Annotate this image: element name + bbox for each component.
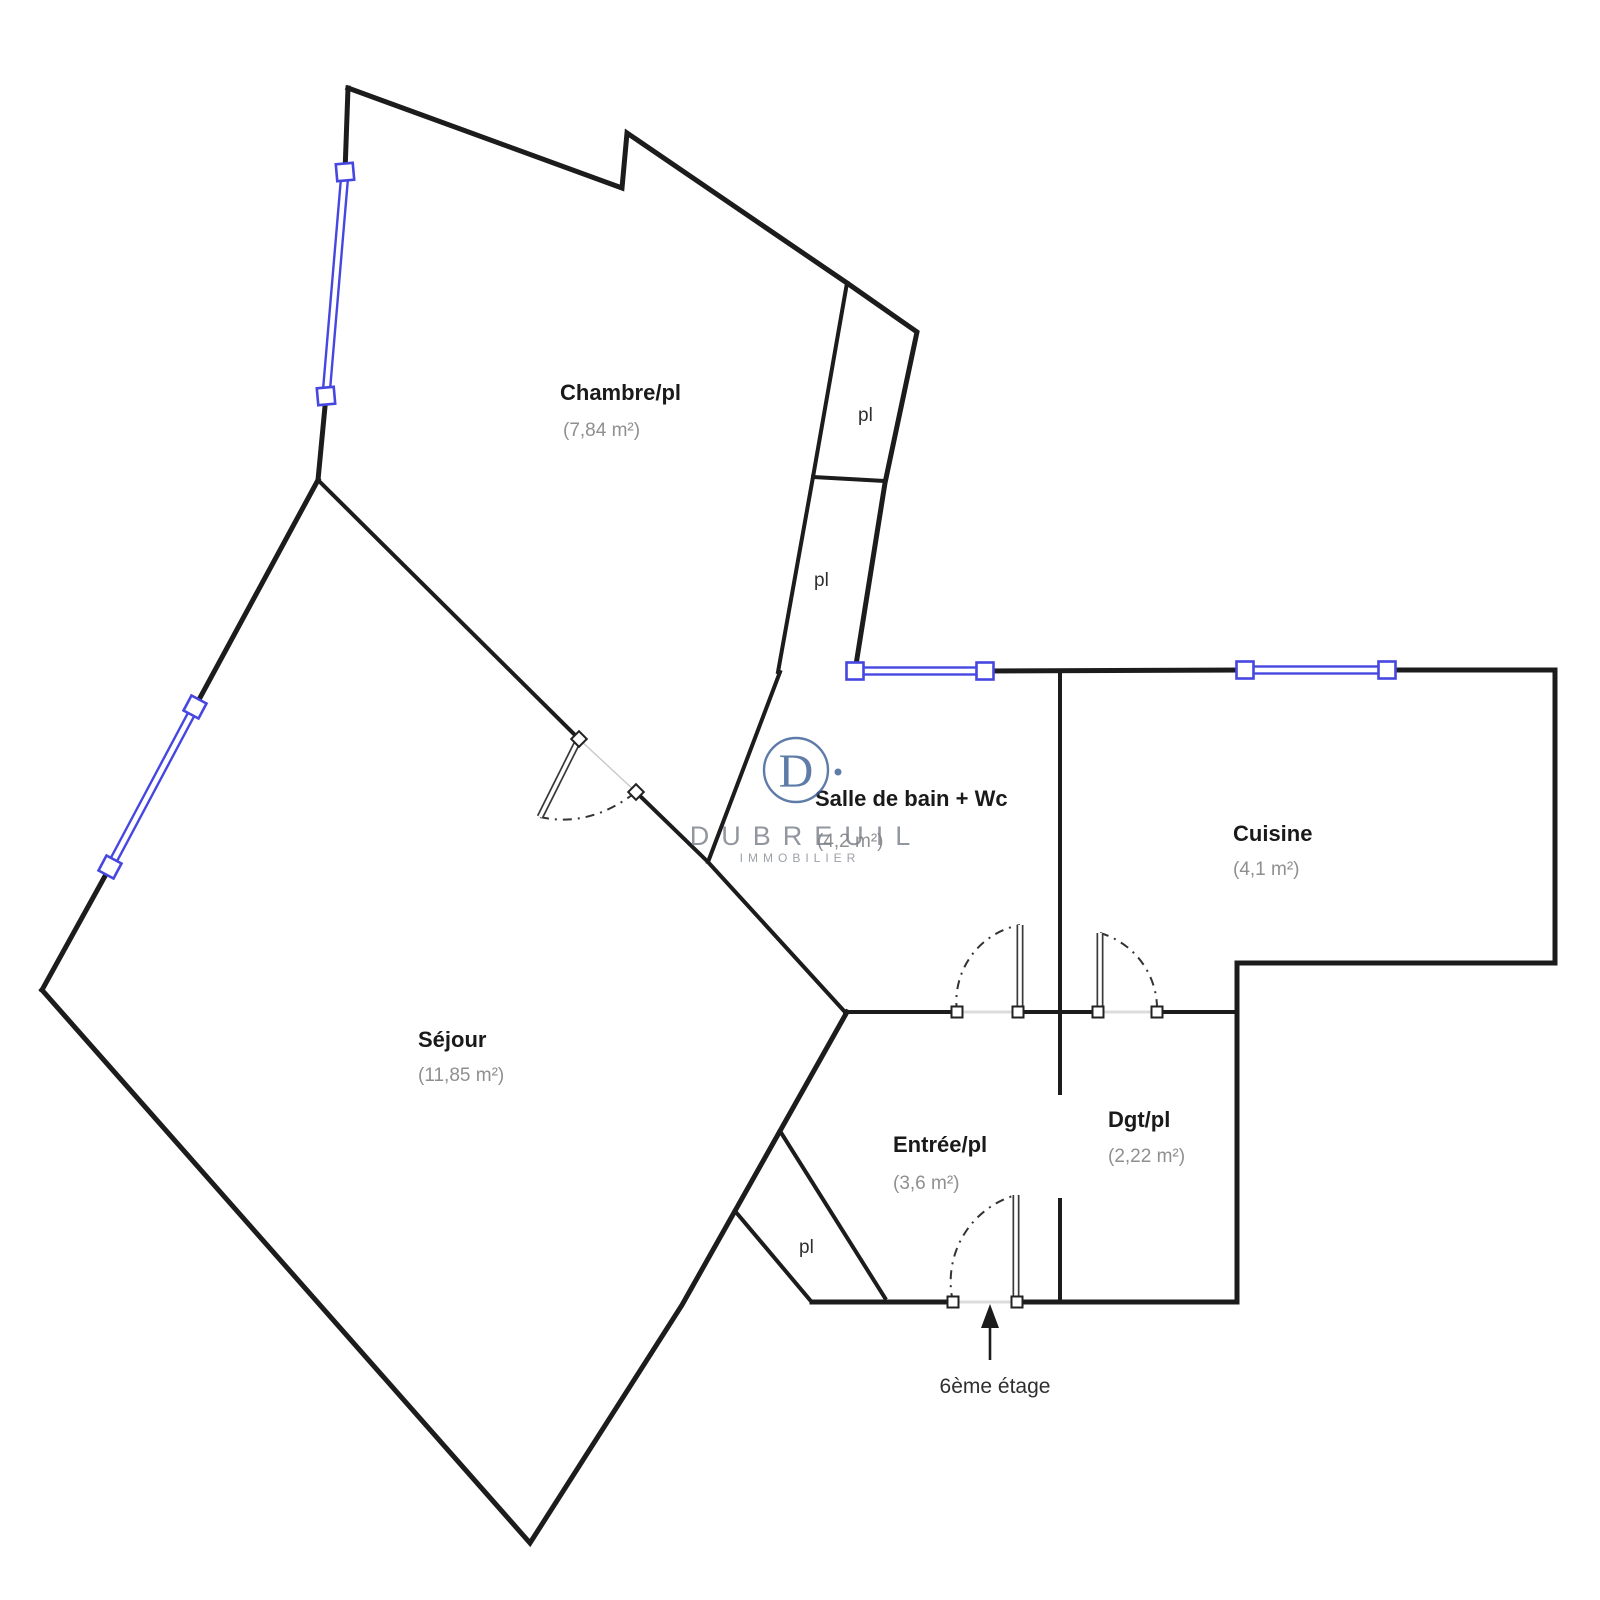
door-chambre-icon	[540, 731, 644, 819]
doors	[540, 731, 1163, 1307]
window-sejour-icon	[99, 696, 207, 879]
interior-walls	[318, 283, 1237, 1302]
wall-left-upper-a	[345, 88, 348, 172]
label-chambre-area: (7,84 m²)	[563, 420, 640, 441]
door-dgt-swing	[1100, 933, 1157, 1012]
wall-closets-divider	[813, 477, 885, 481]
door-entrance-icon	[948, 1195, 1023, 1308]
label-closet-middle: pl	[814, 570, 829, 591]
label-sejour-area: (11,85 m²)	[418, 1065, 504, 1086]
watermark-initial: D	[779, 745, 814, 798]
label-dgt-area: (2,22 m²)	[1108, 1146, 1185, 1167]
door-entrance-swing	[951, 1195, 1016, 1302]
label-entree-area: (3,6 m²)	[893, 1173, 960, 1194]
door-dgt-icon	[1093, 933, 1163, 1018]
floorplan-canvas: Chambre/pl (7,84 m²) pl pl Salle de bain…	[0, 0, 1600, 1600]
label-dgt-name: Dgt/pl	[1108, 1107, 1170, 1132]
exterior-walls	[42, 88, 1555, 1543]
wall-left-diagonal-a	[195, 480, 318, 707]
wall-left-diagonal-b	[42, 867, 110, 990]
label-entree-name: Entrée/pl	[893, 1132, 987, 1157]
label-chambre-name: Chambre/pl	[560, 380, 681, 405]
watermark-brand: DUBREUIL	[690, 821, 923, 851]
entrance-marker: 6ème étage	[940, 1304, 1051, 1398]
windows	[99, 163, 1396, 879]
label-cuisine-name: Cuisine	[1233, 821, 1312, 846]
label-bathroom-name: Salle de bain + Wc	[815, 786, 1008, 811]
room-labels: Chambre/pl (7,84 m²) pl pl Salle de bain…	[418, 380, 1312, 1258]
label-sejour-name: Séjour	[418, 1027, 487, 1052]
floor-note: 6ème étage	[940, 1375, 1051, 1398]
wall-chambre-sejour	[318, 480, 579, 739]
door-chambre-swing	[540, 792, 636, 820]
door-bathroom-icon	[952, 925, 1024, 1018]
watermark-tagline: IMMOBILIER	[740, 851, 861, 865]
floorplan-page: Chambre/pl (7,84 m²) pl pl Salle de bain…	[0, 0, 1600, 1600]
label-closet-upper: pl	[858, 405, 873, 426]
wall-bath-kitchen-top	[985, 670, 1245, 671]
door-bathroom-swing	[956, 925, 1020, 1012]
label-cuisine-area: (4,1 m²)	[1233, 859, 1300, 880]
wall-entry-closet-top	[780, 1131, 885, 1298]
label-closet-entrance: pl	[799, 1237, 814, 1258]
window-bathroom-icon	[847, 663, 994, 680]
entrance-arrow-icon	[981, 1304, 999, 1328]
watermark-dot-icon	[835, 769, 842, 776]
window-chambre-icon	[317, 163, 354, 405]
window-kitchen-icon	[1237, 662, 1396, 679]
opening-chambre	[579, 739, 636, 792]
wall-left-upper-b	[318, 396, 326, 480]
